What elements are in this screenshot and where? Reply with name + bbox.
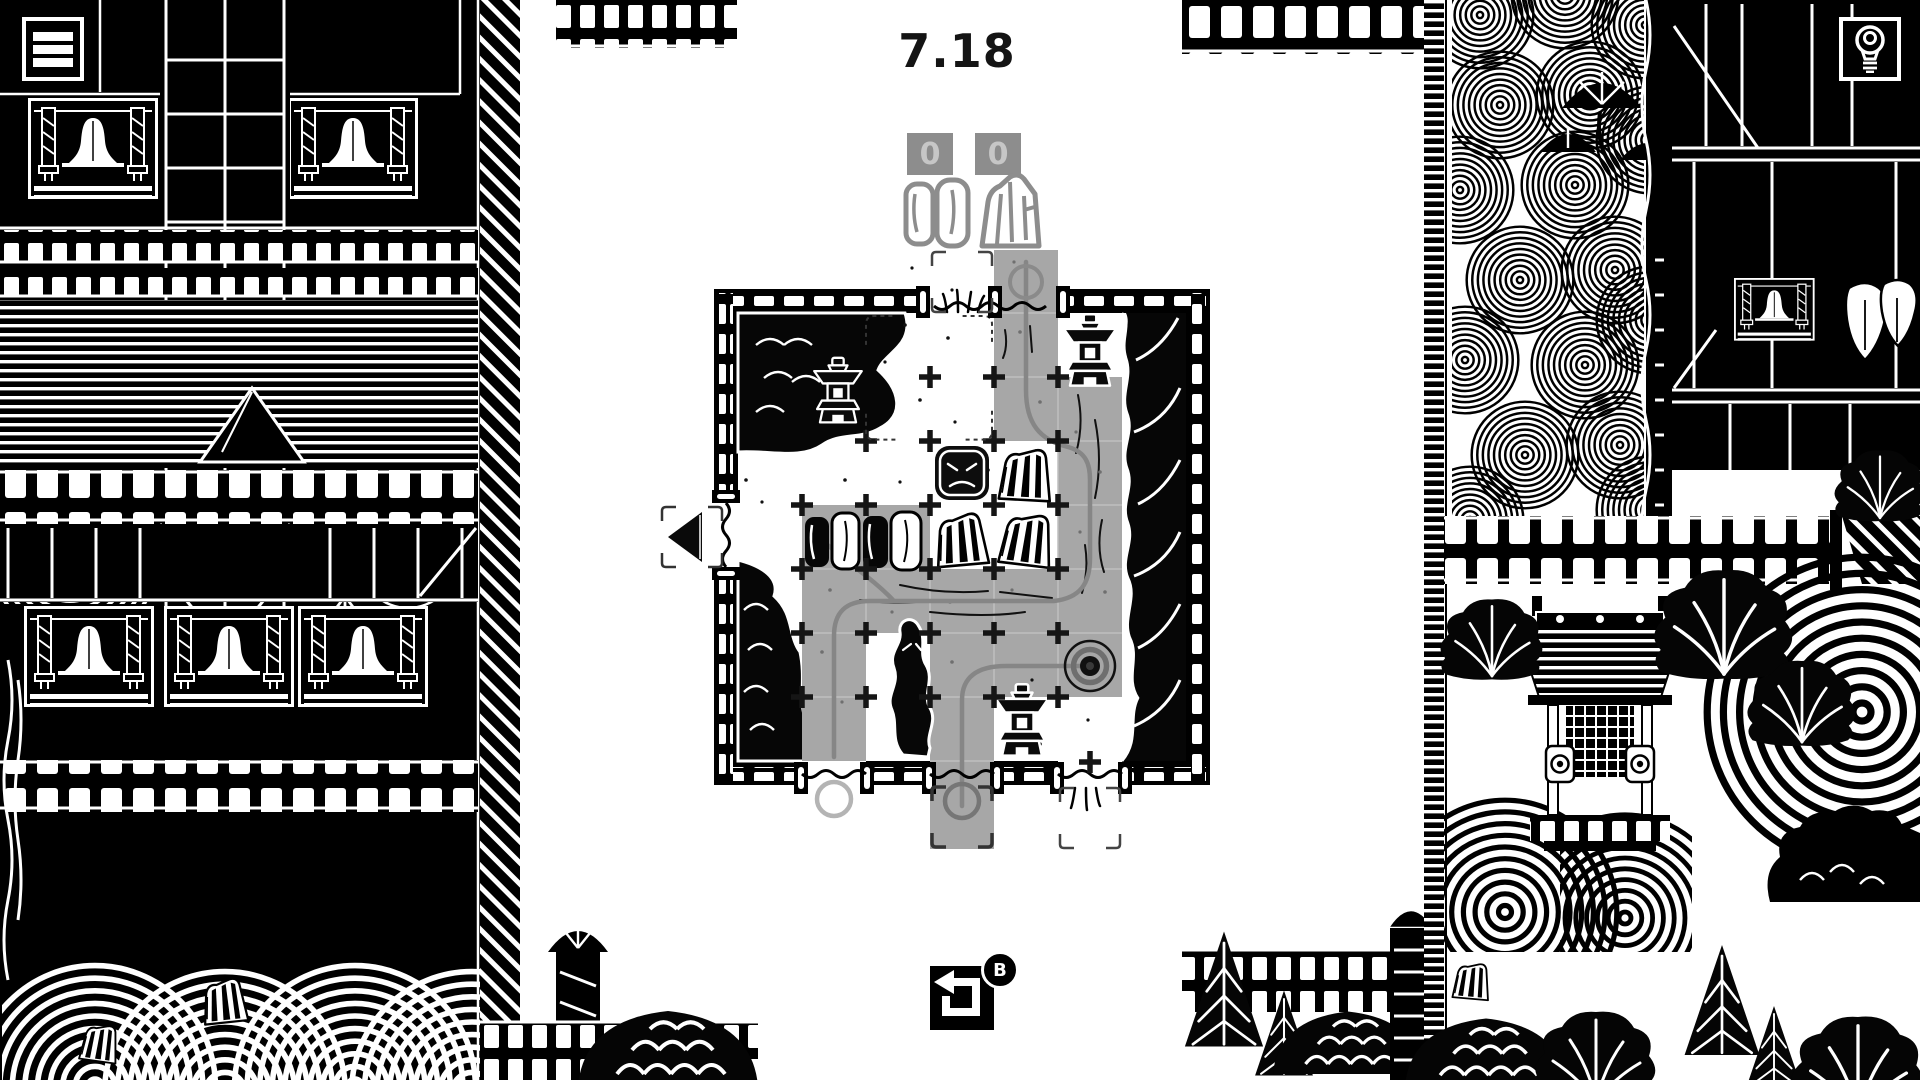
level-label: 7.18: [862, 24, 1052, 78]
counter-value: 0: [988, 137, 1009, 172]
resource-icons: [898, 170, 1053, 255]
left-garden-art: [0, 0, 592, 1080]
standing-stones-icon: [906, 180, 968, 246]
boulder-icon: [982, 175, 1039, 246]
gamepad-b-badge: B: [981, 951, 1019, 989]
game-screen: 7.18 0 0 B: [0, 0, 1920, 1080]
menu-button[interactable]: [22, 17, 84, 81]
exit-bottom-left[interactable]: [817, 782, 851, 816]
hint-button[interactable]: [1839, 17, 1901, 81]
left-gate-marker[interactable]: [662, 507, 722, 567]
counter-boulder: 0: [975, 133, 1021, 175]
right-garden-art: [1393, 0, 1920, 1080]
counter-value: 0: [920, 137, 941, 172]
gamepad-b-label: B: [993, 960, 1007, 981]
puzzle-board[interactable]: [662, 250, 1210, 849]
scene-art: [0, 0, 1920, 1080]
counter-standing-stones: 0: [907, 133, 953, 175]
hamburger-menu-icon: [31, 29, 75, 69]
target-spiral: [1065, 641, 1115, 691]
dark-pillow-tile: [935, 446, 989, 500]
lightbulb-icon: [1850, 25, 1890, 73]
